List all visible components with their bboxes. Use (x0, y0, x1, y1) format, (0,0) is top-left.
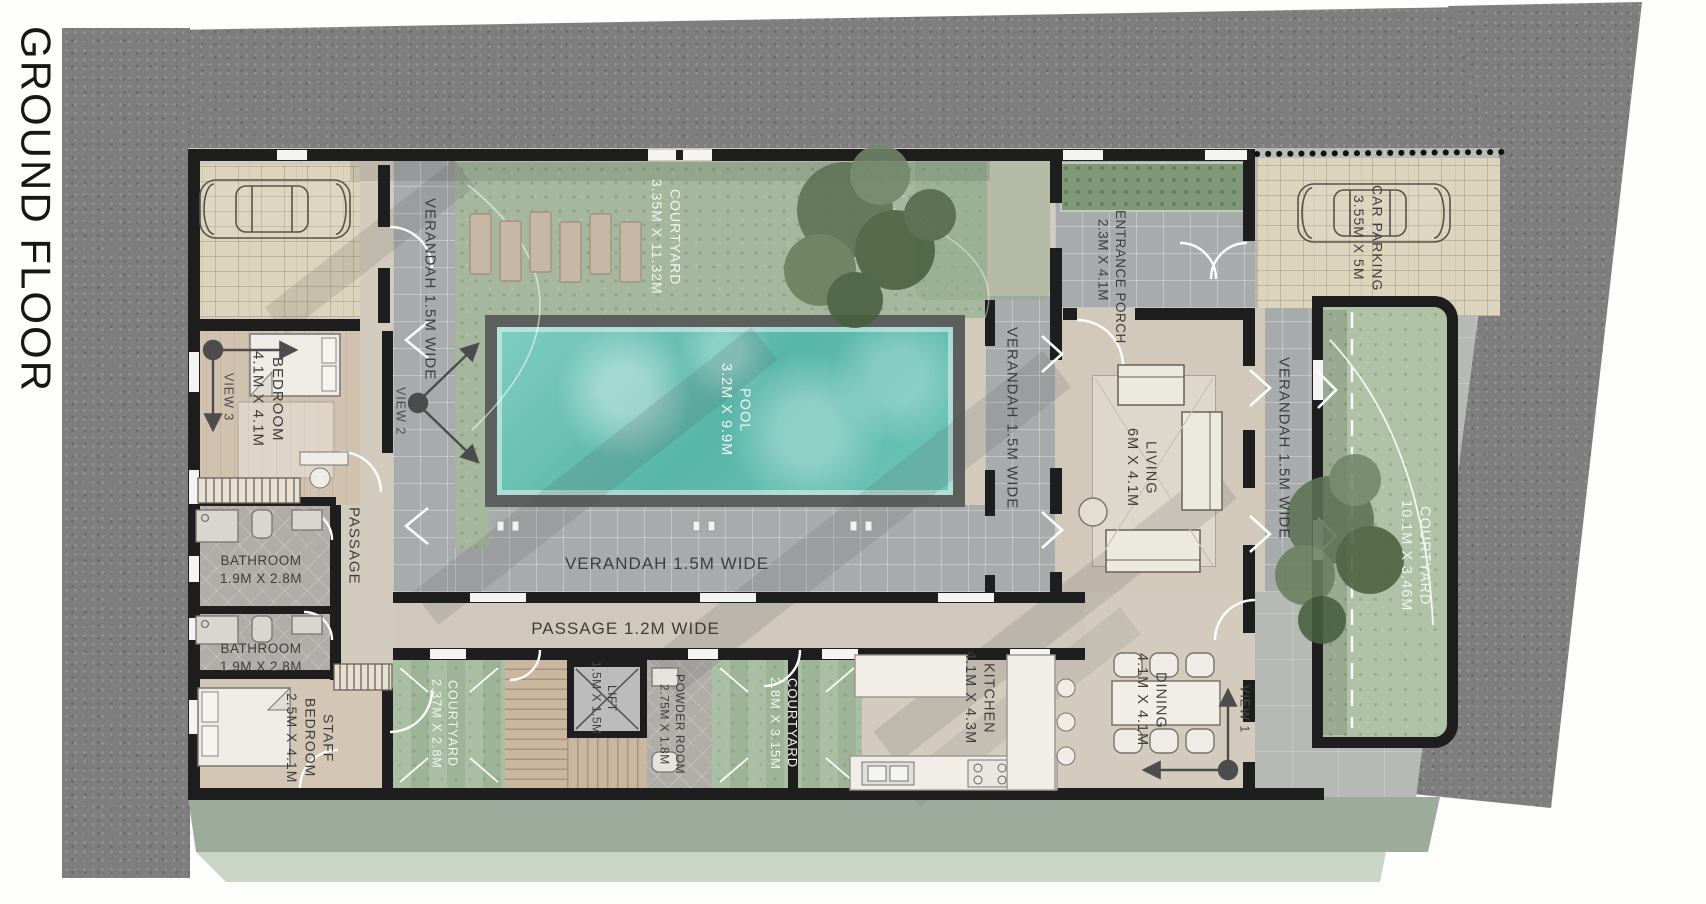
view2-label: VIEW 2 (392, 372, 408, 450)
staff-bedroom-label: STAFF BEDROOM 2.5M X 4.1M (283, 682, 338, 794)
pool-loungers (470, 212, 641, 282)
tree-top (784, 145, 956, 328)
bedroom-label: BEDROOM 4.1M X 4.1M (248, 330, 287, 468)
dotted-boundary (1257, 152, 1502, 154)
lift-label: LIFT 1.5M X 1.5M (588, 660, 619, 736)
deck-pavers (497, 521, 872, 531)
floor-plan-canvas: GROUND FLOOR VERANDAH 1.5M WIDE COURTYAR… (0, 0, 1706, 904)
tree-right (1275, 454, 1404, 644)
view1-label: VIEW 1 (1236, 670, 1252, 748)
car-parking-label: CAR PARKING 3.55M X 5M (1350, 180, 1386, 296)
verandah-right-label: VERANDAH 1.5M WIDE (1274, 320, 1294, 576)
bathroom2-label: BATHROOM 1.9M X 2.8M (200, 640, 322, 675)
courtyard-right-label: COURTYARD 10.1M X 3.46M (1396, 472, 1434, 640)
dining-label: DINING 4.1M X 4.1M (1132, 650, 1170, 750)
view3-label: VIEW 3 (220, 358, 236, 436)
page-title: GROUND FLOOR (8, 26, 63, 398)
courtyard-bc-label: COURTYARD 2.8M X 3.15M (766, 664, 800, 782)
bathroom1-label: BATHROOM 1.9M X 2.8M (200, 552, 322, 587)
living-label: LIVING 6M X 4.1M (1122, 422, 1160, 514)
verandah-mid-label: VERANDAH 1.5M WIDE (1002, 292, 1022, 544)
verandah-left-label: VERANDAH 1.5M WIDE (420, 158, 440, 420)
courtyard-bl-label: COURTYARD 2.37M X 2.8M (428, 666, 461, 782)
car-left (200, 180, 350, 238)
entrance-porch-label: ENTRANCE PORCH 2.3M X 4.1M (1094, 210, 1129, 310)
passage-main-label: PASSAGE 1.2M WIDE (518, 618, 733, 640)
verandah-pool-label: VERANDAH 1.5M WIDE (552, 553, 782, 575)
kitchen-label: KITCHEN 4.1M X 4.3M (960, 648, 998, 748)
pool-label: POOL 3.2M X 9.9M (716, 343, 754, 477)
courtyard-top-label: COURTYARD 3.35M X 11.32M (648, 168, 684, 306)
passage-left-label: PASSAGE (344, 482, 364, 610)
powder-room-label: POWDER ROOM 2.75M X 1.8M (656, 662, 687, 786)
